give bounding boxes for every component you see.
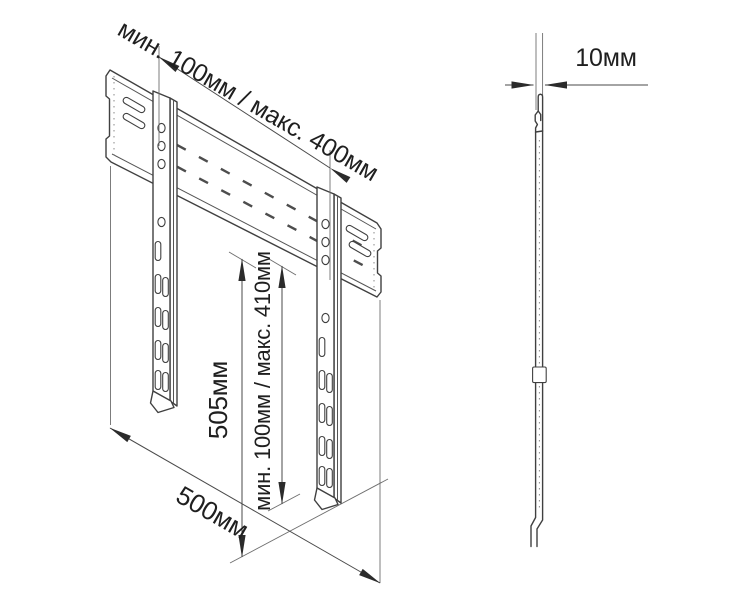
profile-outline [531,94,546,546]
dim-label-arm-height: 505мм [203,361,233,439]
side-profile-view: 10мм [505,33,648,547]
diagram-canvas: мин. 100мм / макс. 400мм 505мм мин. 100м… [0,0,734,600]
dim-label-thickness: 10мм [575,44,636,72]
profile-hook-tick [536,131,543,132]
profile-hook-inner [538,111,541,121]
wall-mount-technical-drawing: мин. 100мм / макс. 400мм 505мм мин. 100м… [0,0,734,600]
isometric-view: мин. 100мм / макс. 400мм 505мм мин. 100м… [106,15,388,583]
profile-clip-detail [533,367,547,383]
left-vesa-arm [151,91,178,413]
dimension-vertical-span: мин. 100мм / макс. 410мм [250,251,282,511]
dim-label-vertical-span: мин. 100мм / макс. 410мм [250,251,275,511]
dim-label-plate-width: 500мм [171,480,254,545]
right-vesa-arm [315,187,342,510]
dimension-thickness: 10мм [505,44,648,85]
